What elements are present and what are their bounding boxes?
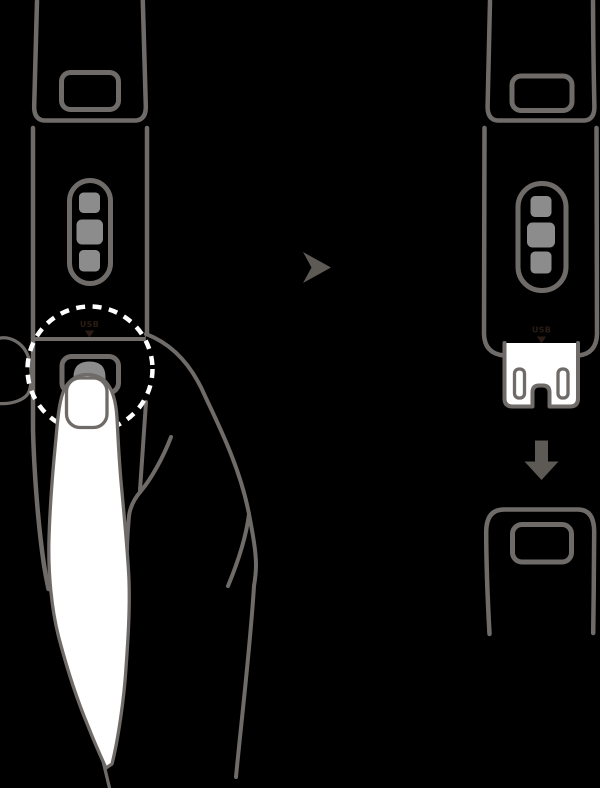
panel-usb-detached: USB bbox=[484, 0, 598, 634]
usb-connector bbox=[505, 343, 579, 407]
diagram-svg: USB bbox=[0, 0, 600, 788]
usb-label: USB bbox=[80, 320, 99, 329]
thumb-shape bbox=[49, 375, 129, 769]
clasp-hole bbox=[527, 223, 555, 248]
down-arrow-icon bbox=[525, 441, 559, 481]
clasp-hole bbox=[79, 193, 100, 214]
next-arrow-icon bbox=[303, 252, 331, 283]
band-bottom-outline bbox=[486, 510, 594, 635]
panel-press-button: USB bbox=[0, 0, 256, 788]
usb-label: USB bbox=[532, 326, 551, 335]
index-fingertip bbox=[0, 338, 31, 404]
clasp-hole bbox=[79, 250, 100, 272]
band-bottom-piece bbox=[486, 510, 594, 635]
clasp-hole bbox=[531, 252, 552, 274]
thumb-nail bbox=[67, 378, 108, 428]
band-right-fill bbox=[484, 0, 598, 357]
screen-window bbox=[513, 525, 572, 563]
illustration-canvas: USB bbox=[0, 0, 600, 788]
thumb bbox=[49, 375, 129, 788]
clasp-hole bbox=[77, 220, 104, 245]
clasp-hole bbox=[531, 196, 552, 217]
